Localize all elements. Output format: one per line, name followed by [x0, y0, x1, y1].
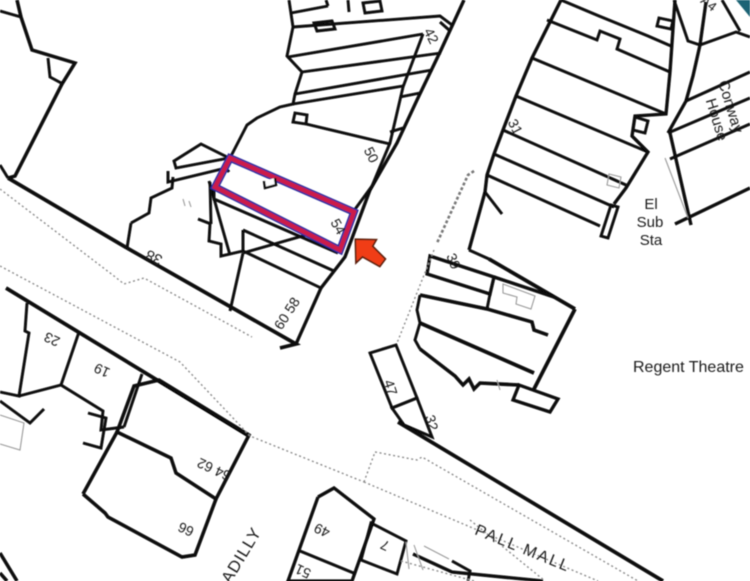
svg-text:El: El [644, 196, 657, 213]
svg-text:Regent Theatre: Regent Theatre [633, 359, 744, 376]
svg-text:Sub: Sub [637, 214, 664, 231]
svg-text:Sta: Sta [640, 232, 663, 249]
